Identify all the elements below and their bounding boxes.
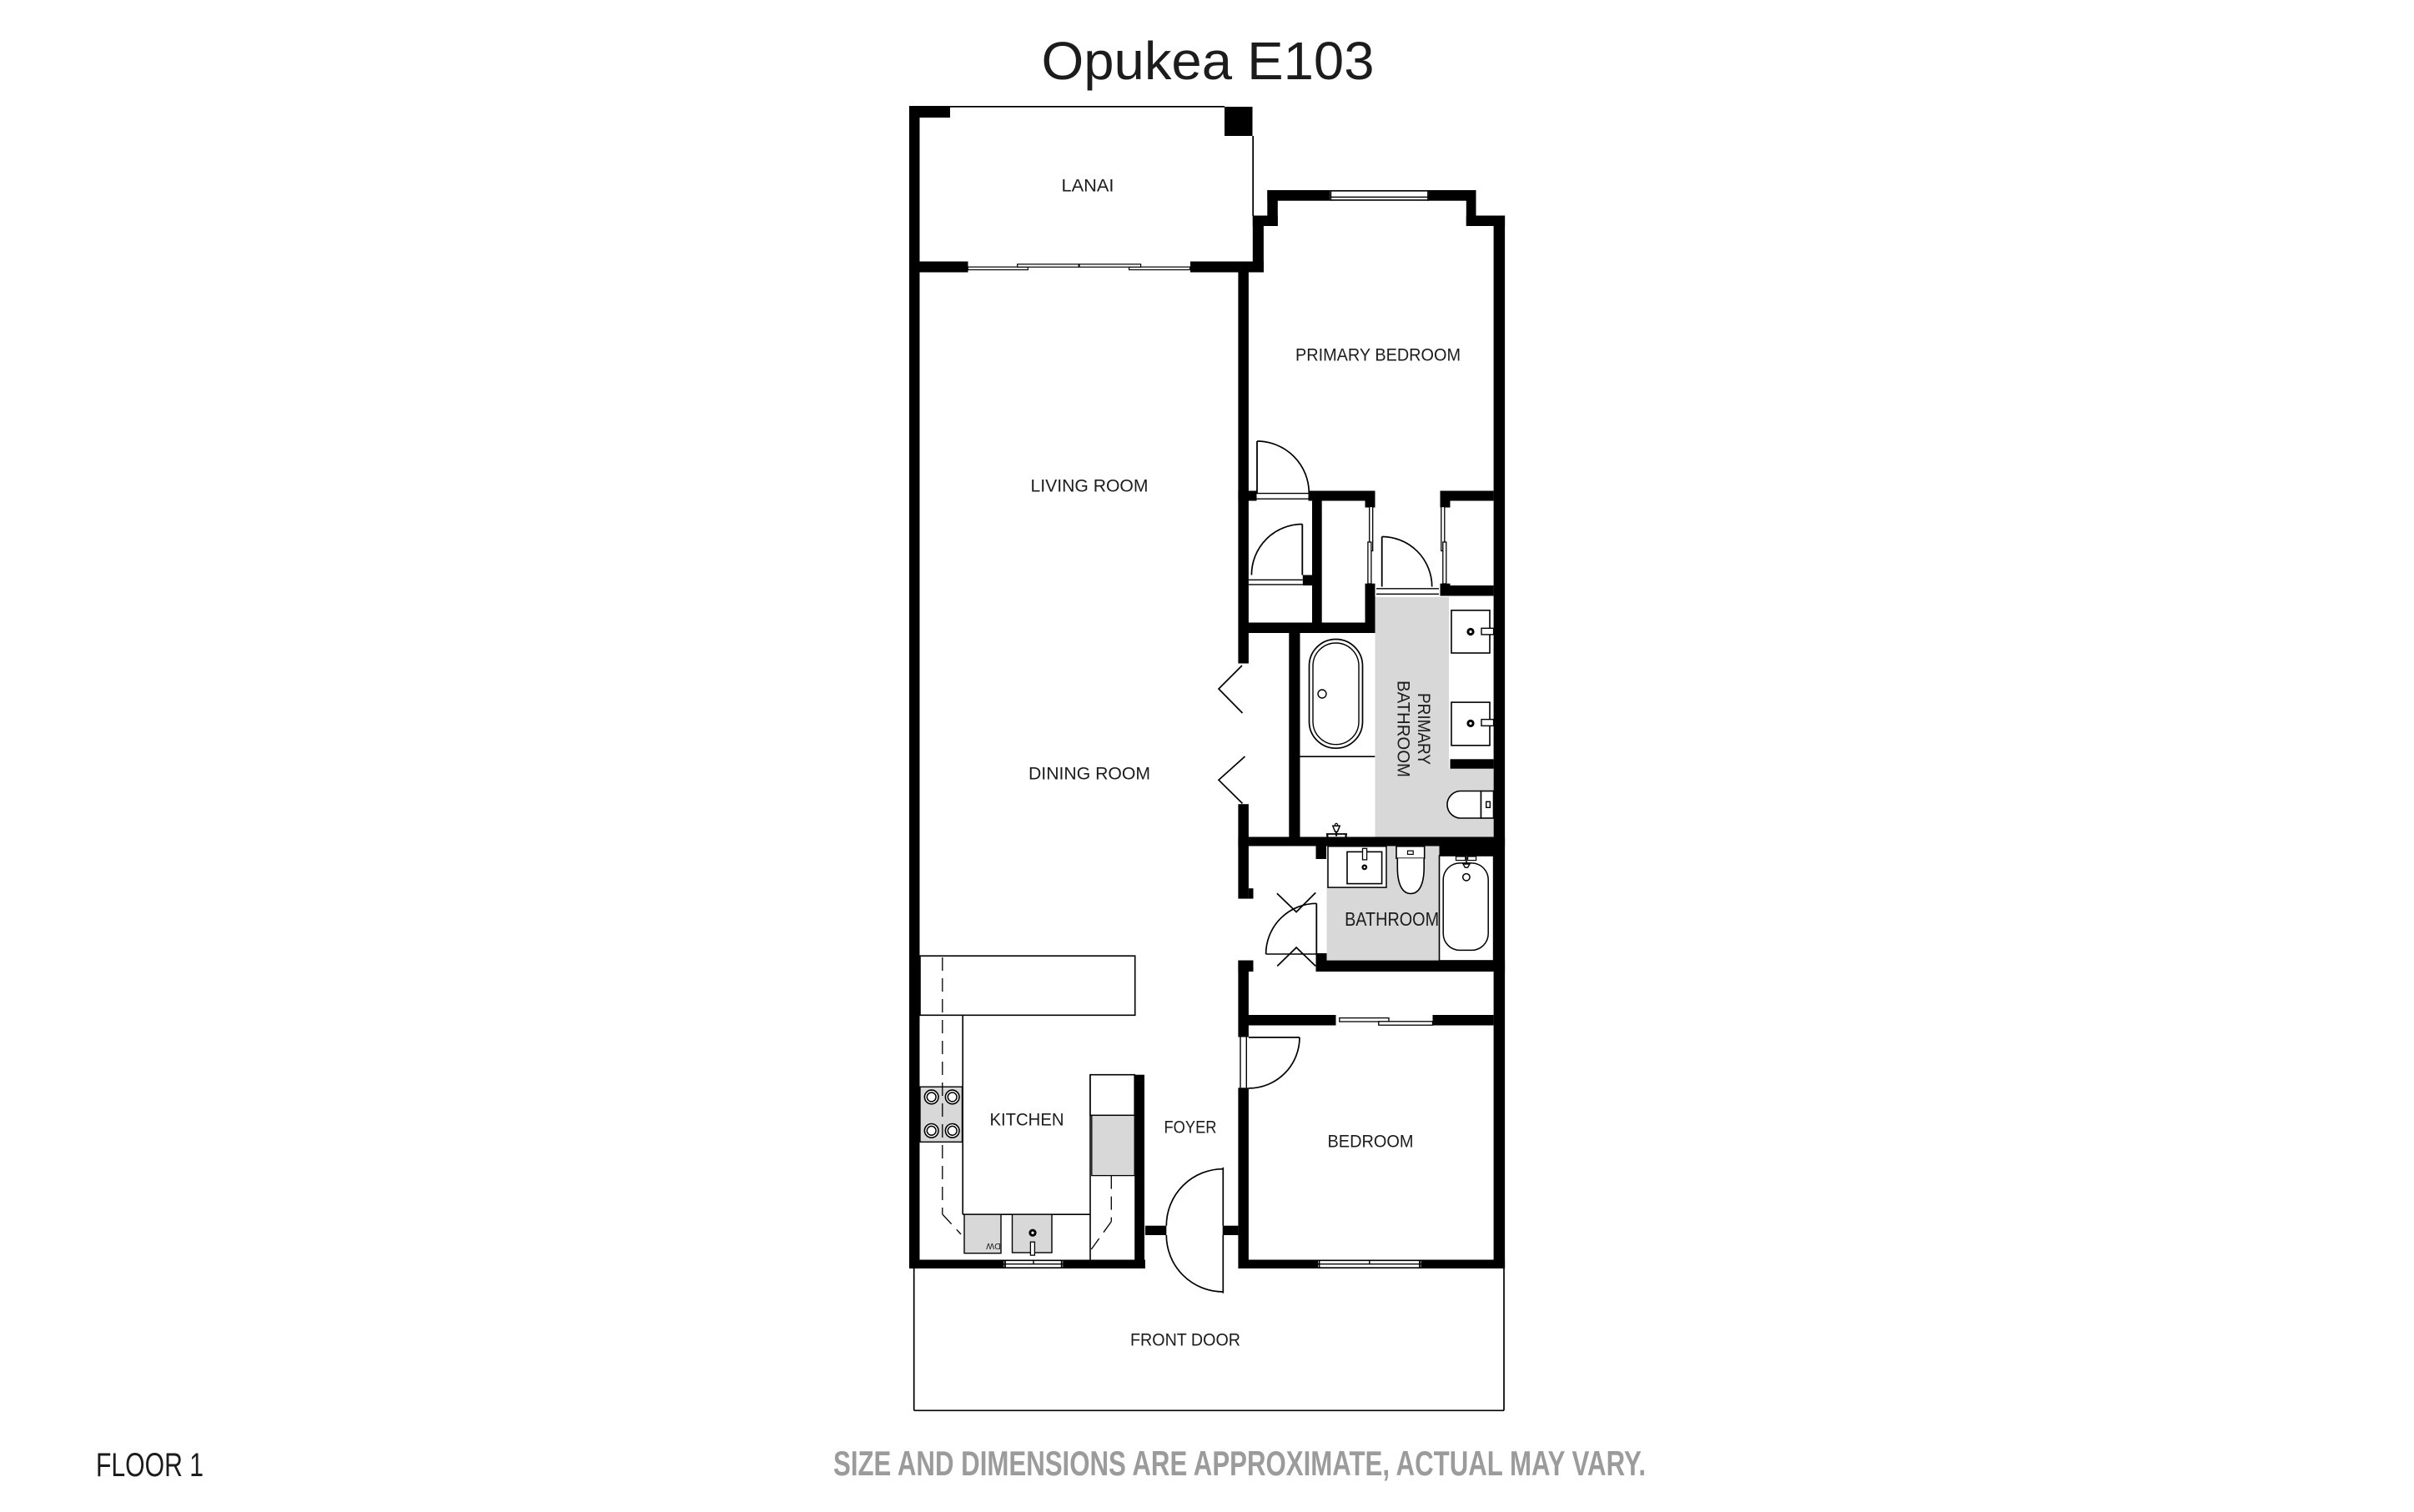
- svg-text:KITCHEN: KITCHEN: [990, 1111, 1064, 1130]
- svg-text:LANAI: LANAI: [1062, 177, 1114, 196]
- svg-text:FRONT DOOR: FRONT DOOR: [1130, 1331, 1240, 1350]
- svg-text:DINING ROOM: DINING ROOM: [1028, 765, 1150, 784]
- svg-text:PRIMARY BEDROOM: PRIMARY BEDROOM: [1295, 346, 1461, 365]
- svg-text:SIZE AND DIMENSIONS ARE APPROX: SIZE AND DIMENSIONS ARE APPROXIMATE, ACT…: [833, 1444, 1646, 1483]
- svg-text:Opukea E103: Opukea E103: [1042, 31, 1375, 91]
- svg-text:PRIMARY: PRIMARY: [1414, 693, 1433, 765]
- svg-text:DW: DW: [986, 1241, 1001, 1251]
- svg-text:FLOOR 1: FLOOR 1: [96, 1447, 204, 1484]
- svg-text:BATHROOM: BATHROOM: [1345, 908, 1439, 930]
- svg-text:BATHROOM: BATHROOM: [1394, 681, 1413, 777]
- svg-text:FOYER: FOYER: [1164, 1118, 1217, 1138]
- svg-text:LIVING ROOM: LIVING ROOM: [1031, 477, 1149, 496]
- svg-text:BEDROOM: BEDROOM: [1328, 1133, 1414, 1152]
